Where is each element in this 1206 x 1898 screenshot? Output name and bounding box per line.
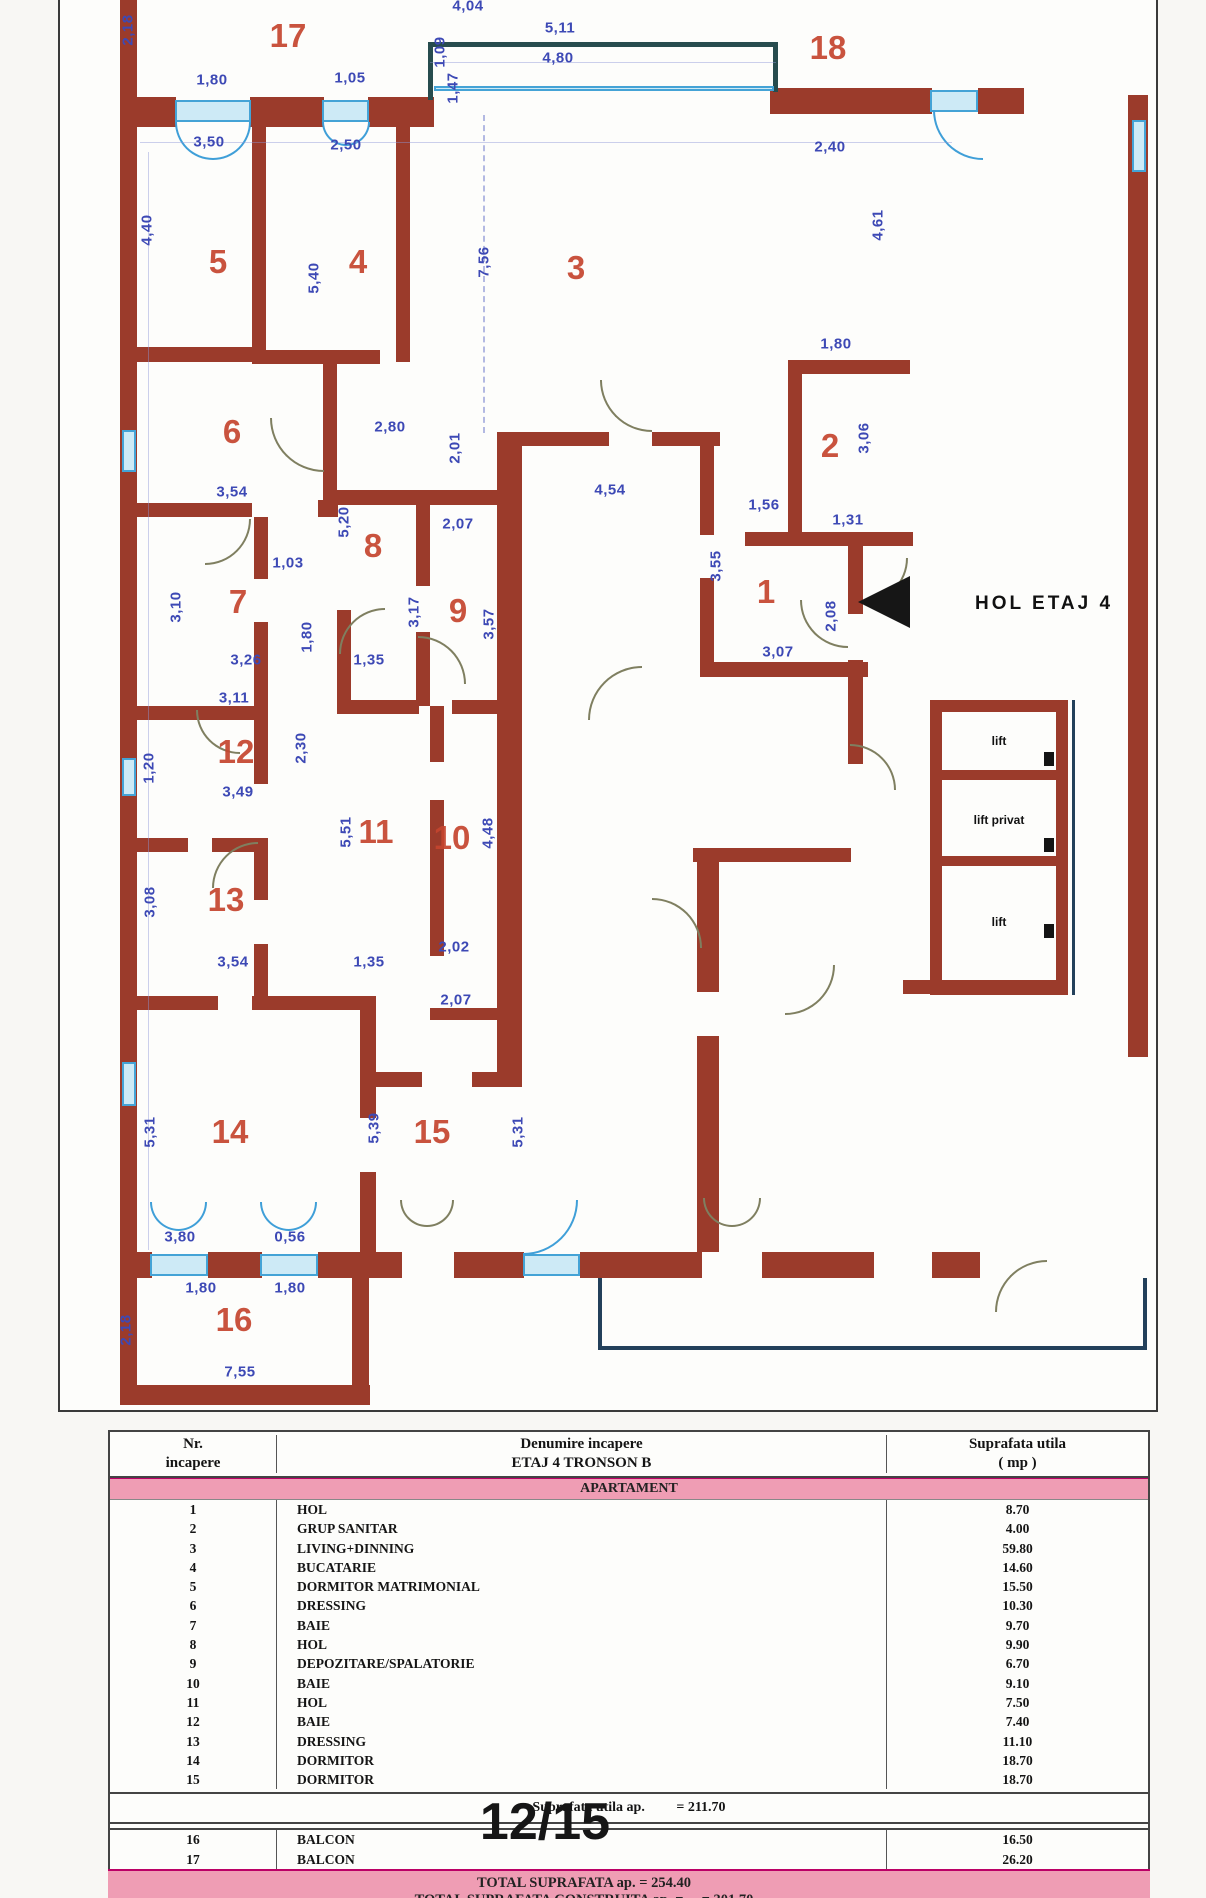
- wall: [208, 1252, 262, 1278]
- dimension-label: 5,40: [306, 262, 323, 293]
- table-row: 6 DRESSING 10.30: [110, 1596, 1148, 1615]
- dimension-label: 2,07: [442, 516, 473, 533]
- dimension-label: 2,02: [438, 939, 469, 956]
- window: [322, 100, 369, 122]
- room-number-10: 10: [434, 819, 471, 857]
- balcony-outline: [1072, 700, 1075, 995]
- window: [523, 1254, 580, 1276]
- table-row: 15 DORMITOR 18.70: [110, 1770, 1148, 1789]
- dimension-label: 1,80: [820, 336, 851, 353]
- table-row: 9 DEPOZITARE/SPALATORIE 6.70: [110, 1654, 1148, 1673]
- dimension-label: 3,10: [168, 591, 185, 622]
- dimension-label: 1,56: [748, 497, 779, 514]
- cell-name: DORMITOR MATRIMONIAL: [277, 1577, 887, 1596]
- window: [175, 100, 251, 122]
- room-number-2: 2: [821, 427, 839, 465]
- dimension-label: 5,39: [366, 1112, 383, 1143]
- wall: [323, 490, 503, 505]
- header-area: Suprafata utila ( mp ): [887, 1435, 1148, 1473]
- dimension-label: 3,08: [142, 886, 159, 917]
- table-row: 10 BAIE 9.10: [110, 1674, 1148, 1693]
- dimension-label: 3,49: [222, 784, 253, 801]
- dimension-label: 1,80: [299, 621, 316, 652]
- room-number-11: 11: [359, 813, 394, 851]
- dimension-label: 1,80: [274, 1280, 305, 1297]
- cell-name: GRUP SANITAR: [277, 1519, 887, 1538]
- room-number-15: 15: [414, 1113, 451, 1151]
- wall: [352, 1252, 369, 1405]
- cell-name: DRESSING: [277, 1732, 887, 1751]
- cell-nr: 3: [110, 1539, 277, 1558]
- wall: [770, 88, 932, 114]
- header-name: Denumire incapere ETAJ 4 TRONSON B: [277, 1435, 887, 1473]
- wall: [1128, 95, 1148, 1057]
- wall: [788, 360, 802, 540]
- dimension-label: 4,80: [542, 50, 573, 67]
- table-row: 12 BAIE 7.40: [110, 1712, 1148, 1731]
- dimension-label: 0,56: [274, 1229, 305, 1246]
- cell-area: 7.50: [887, 1693, 1148, 1712]
- wall: [700, 578, 714, 664]
- wall: [376, 1072, 422, 1087]
- wall: [472, 1072, 522, 1087]
- table-row: 13 DRESSING 11.10: [110, 1732, 1148, 1751]
- wall: [323, 364, 337, 490]
- dimension-label: 2,80: [374, 419, 405, 436]
- dimension-label: 5,31: [510, 1116, 527, 1147]
- wall: [745, 532, 913, 546]
- window: [122, 430, 136, 472]
- cell-area: 9.90: [887, 1635, 1148, 1654]
- wall: [252, 112, 266, 362]
- cell-nr: 7: [110, 1616, 277, 1635]
- lift-label: lift: [992, 915, 1007, 929]
- dimension-label: 5,11: [545, 20, 575, 37]
- wall: [932, 1252, 980, 1278]
- wall: [1056, 700, 1068, 995]
- window: [150, 1254, 208, 1276]
- terrace-glazing-wall: [773, 42, 778, 92]
- cell-area: 8.70: [887, 1500, 1148, 1519]
- cell-nr: 12: [110, 1712, 277, 1731]
- dimension-label: 1,80: [185, 1280, 216, 1297]
- balcony-outline: [598, 1278, 602, 1350]
- table-row: 11 HOL 7.50: [110, 1693, 1148, 1712]
- wall: [697, 850, 719, 992]
- lift-label: lift: [992, 734, 1007, 748]
- dimension-label: 7,56: [476, 246, 493, 277]
- dimension-label: 1,31: [832, 512, 863, 529]
- dimension-label: 2,50: [330, 137, 361, 154]
- wall: [254, 517, 268, 579]
- wall: [930, 770, 1068, 780]
- cell-name: LIVING+DINNING: [277, 1539, 887, 1558]
- wall: [396, 112, 410, 362]
- entrance-arrow-icon: [858, 576, 910, 628]
- table-body: 1 HOL 8.702 GRUP SANITAR 4.003 LIVING+DI…: [110, 1500, 1148, 1789]
- cell-area: 26.20: [887, 1850, 1148, 1869]
- dimension-label: 1,35: [353, 954, 384, 971]
- cell-nr: 9: [110, 1654, 277, 1673]
- table-row: 14 DORMITOR 18.70: [110, 1751, 1148, 1770]
- wall: [497, 432, 609, 446]
- cell-name: BALCON: [277, 1850, 887, 1869]
- cell-nr: 4: [110, 1558, 277, 1577]
- wall: [252, 350, 380, 364]
- dimension-label: 4,48: [480, 817, 497, 848]
- cell-area: 18.70: [887, 1751, 1148, 1770]
- cell-name: HOL: [277, 1635, 887, 1654]
- room-number-7: 7: [229, 583, 247, 621]
- lift-label: lift privat: [974, 813, 1025, 827]
- dimension-label: 3,54: [216, 484, 247, 501]
- cell-name: DEPOZITARE/SPALATORIE: [277, 1654, 887, 1673]
- scanned-floor-plan-page: 1718543628791121110131415162,181,801,051…: [0, 0, 1206, 1898]
- wall: [700, 662, 868, 677]
- wall: [254, 706, 268, 784]
- cell-nr: 6: [110, 1596, 277, 1615]
- dimension-label: 5,20: [336, 506, 353, 537]
- dimension-label: 2,07: [440, 992, 471, 1009]
- window: [930, 90, 978, 112]
- dimension-line: [430, 62, 776, 63]
- wall: [416, 490, 430, 586]
- wall: [700, 445, 714, 535]
- cell-area: 6.70: [887, 1654, 1148, 1673]
- dimension-label: 4,61: [870, 209, 887, 240]
- dimension-label: 1,35: [353, 652, 384, 669]
- total-line-2: TOTAL SUPRAFATA CONSTRUITA ap. = ... = 3…: [108, 1892, 1150, 1898]
- hall-etaj4-label: HOL ETAJ 4: [975, 593, 1113, 615]
- dimension-label: 1,47: [445, 72, 462, 103]
- lift-door-mark: [1044, 752, 1054, 766]
- room-number-18: 18: [810, 29, 847, 67]
- wall: [452, 700, 517, 714]
- cell-name: HOL: [277, 1693, 887, 1712]
- table-row: 1 HOL 8.70: [110, 1500, 1148, 1519]
- dimension-label: 5,31: [142, 1116, 159, 1147]
- window: [122, 1062, 136, 1106]
- header-nr: Nr. incapere: [110, 1435, 277, 1473]
- dimension-label: 1,05: [334, 70, 365, 87]
- cell-area: 9.70: [887, 1616, 1148, 1635]
- room-number-9: 9: [449, 592, 467, 630]
- room-number-3: 3: [567, 249, 585, 287]
- table-row: 3 LIVING+DINNING 59.80: [110, 1539, 1148, 1558]
- dimension-label: 2,30: [293, 732, 310, 763]
- room-number-16: 16: [216, 1301, 253, 1339]
- window: [260, 1254, 318, 1276]
- wall: [252, 996, 366, 1010]
- room-number-1: 1: [757, 573, 775, 611]
- lift-door-mark: [1044, 924, 1054, 938]
- wall: [930, 700, 1068, 712]
- subtotal-value: = 211.70: [676, 1800, 725, 1815]
- cell-name: BUCATARIE: [277, 1558, 887, 1577]
- table-row: 2 GRUP SANITAR 4.00: [110, 1519, 1148, 1538]
- total-footer-band: TOTAL SUPRAFATA ap. = 254.40 TOTAL SUPRA…: [108, 1869, 1150, 1898]
- room-number-4: 4: [349, 243, 367, 281]
- wall: [930, 700, 942, 995]
- cell-nr: 8: [110, 1635, 277, 1654]
- dimension-label: 3,26: [230, 652, 261, 669]
- dimension-label: 1,09: [432, 36, 449, 67]
- cell-area: 14.60: [887, 1558, 1148, 1577]
- cell-area: 15.50: [887, 1577, 1148, 1596]
- wall: [120, 1252, 152, 1278]
- table-row: 4 BUCATARIE 14.60: [110, 1558, 1148, 1577]
- table-row: 7 BAIE 9.70: [110, 1616, 1148, 1635]
- wall: [254, 944, 268, 996]
- dimension-label: 3,50: [193, 134, 224, 151]
- dimension-label: 2,40: [814, 139, 845, 156]
- dimension-label: 2,18: [118, 1314, 135, 1345]
- window: [1132, 120, 1146, 172]
- cell-area: 18.70: [887, 1770, 1148, 1789]
- wall: [120, 97, 176, 127]
- cell-nr: 1: [110, 1500, 277, 1519]
- room-number-8: 8: [364, 527, 382, 565]
- dimension-line: [148, 152, 149, 1250]
- cell-area: 7.40: [887, 1712, 1148, 1731]
- window: [434, 86, 774, 91]
- window: [122, 758, 136, 796]
- cell-nr: 13: [110, 1732, 277, 1751]
- balcony-outline: [1143, 1278, 1147, 1350]
- dimension-label: 5,51: [338, 816, 355, 847]
- wall: [903, 980, 1065, 994]
- cell-name: DORMITOR: [277, 1751, 887, 1770]
- wall: [652, 432, 720, 446]
- cell-name: BAIE: [277, 1712, 887, 1731]
- wall: [497, 445, 522, 1085]
- cell-area: 11.10: [887, 1732, 1148, 1751]
- cell-nr: 15: [110, 1770, 277, 1789]
- dimension-label: 3,11: [219, 690, 249, 707]
- wall: [120, 1385, 370, 1405]
- dimension-label: 2,01: [447, 432, 464, 463]
- wall: [430, 1008, 502, 1020]
- total-line-1: TOTAL SUPRAFATA ap. = 254.40: [108, 1875, 1150, 1892]
- wall: [430, 706, 444, 762]
- lift-door-mark: [1044, 838, 1054, 852]
- cell-nr: 16: [110, 1830, 277, 1849]
- table-header-row: Nr. incapere Denumire incapere ETAJ 4 TR…: [110, 1432, 1148, 1478]
- dimension-label: 2,08: [823, 600, 840, 631]
- dimension-label: 4,54: [594, 482, 625, 499]
- wall: [580, 1252, 702, 1278]
- floor-plan: 1718543628791121110131415162,181,801,051…: [0, 0, 1206, 1412]
- dimension-label: 1,80: [196, 72, 227, 89]
- dimension-label: 3,54: [217, 954, 248, 971]
- dimension-label: 3,80: [164, 1229, 195, 1246]
- wall: [360, 1172, 376, 1252]
- wall: [136, 347, 254, 362]
- balcony-outline: [598, 1346, 1147, 1350]
- table-row: 8 HOL 9.90: [110, 1635, 1148, 1654]
- dimension-label: 3,17: [406, 596, 423, 627]
- cell-nr: 2: [110, 1519, 277, 1538]
- dimension-label: 3,06: [856, 422, 873, 453]
- terrace-glazing-wall: [428, 42, 778, 47]
- section-band-apartament: APARTAMENT: [110, 1478, 1148, 1500]
- cell-nr: 14: [110, 1751, 277, 1770]
- table-row: 5 DORMITOR MATRIMONIAL 15.50: [110, 1577, 1148, 1596]
- cell-area: 4.00: [887, 1519, 1148, 1538]
- cell-area: 59.80: [887, 1539, 1148, 1558]
- room-number-14: 14: [212, 1113, 249, 1151]
- page-indicator: 12/15: [455, 1792, 635, 1852]
- dimension-label: 4,04: [452, 0, 483, 15]
- dimension-label: 3,55: [708, 550, 725, 581]
- wall: [454, 1252, 524, 1278]
- cell-name: DORMITOR: [277, 1770, 887, 1789]
- dimension-label: 3,07: [762, 644, 793, 661]
- wall: [978, 88, 1024, 114]
- cell-nr: 10: [110, 1674, 277, 1693]
- dimension-label: 4,40: [139, 214, 156, 245]
- room-number-17: 17: [270, 17, 307, 55]
- table-row: 17 BALCON 26.20: [110, 1850, 1148, 1869]
- dimension-label: 1,20: [141, 752, 158, 783]
- cell-name: BAIE: [277, 1616, 887, 1635]
- wall: [930, 856, 1068, 866]
- cell-name: DRESSING: [277, 1596, 887, 1615]
- wall: [360, 996, 376, 1118]
- room-number-5: 5: [209, 243, 227, 281]
- cell-nr: 17: [110, 1850, 277, 1869]
- cell-area: 10.30: [887, 1596, 1148, 1615]
- wall: [788, 360, 910, 374]
- cell-area: 16.50: [887, 1830, 1148, 1849]
- cell-nr: 5: [110, 1577, 277, 1596]
- room-number-6: 6: [223, 413, 241, 451]
- wall: [762, 1252, 874, 1278]
- cell-area: 9.10: [887, 1674, 1148, 1693]
- dimension-label: 7,55: [224, 1364, 255, 1381]
- wall: [136, 503, 252, 517]
- dimension-label: 2,18: [120, 14, 137, 45]
- dimension-label: 3,57: [481, 608, 498, 639]
- room-number-13: 13: [208, 881, 245, 919]
- wall: [337, 700, 419, 714]
- room-number-12: 12: [218, 733, 255, 771]
- cell-nr: 11: [110, 1693, 277, 1712]
- cell-name: BAIE: [277, 1674, 887, 1693]
- cell-name: HOL: [277, 1500, 887, 1519]
- dimension-label: 1,03: [272, 555, 303, 572]
- wall: [136, 838, 188, 852]
